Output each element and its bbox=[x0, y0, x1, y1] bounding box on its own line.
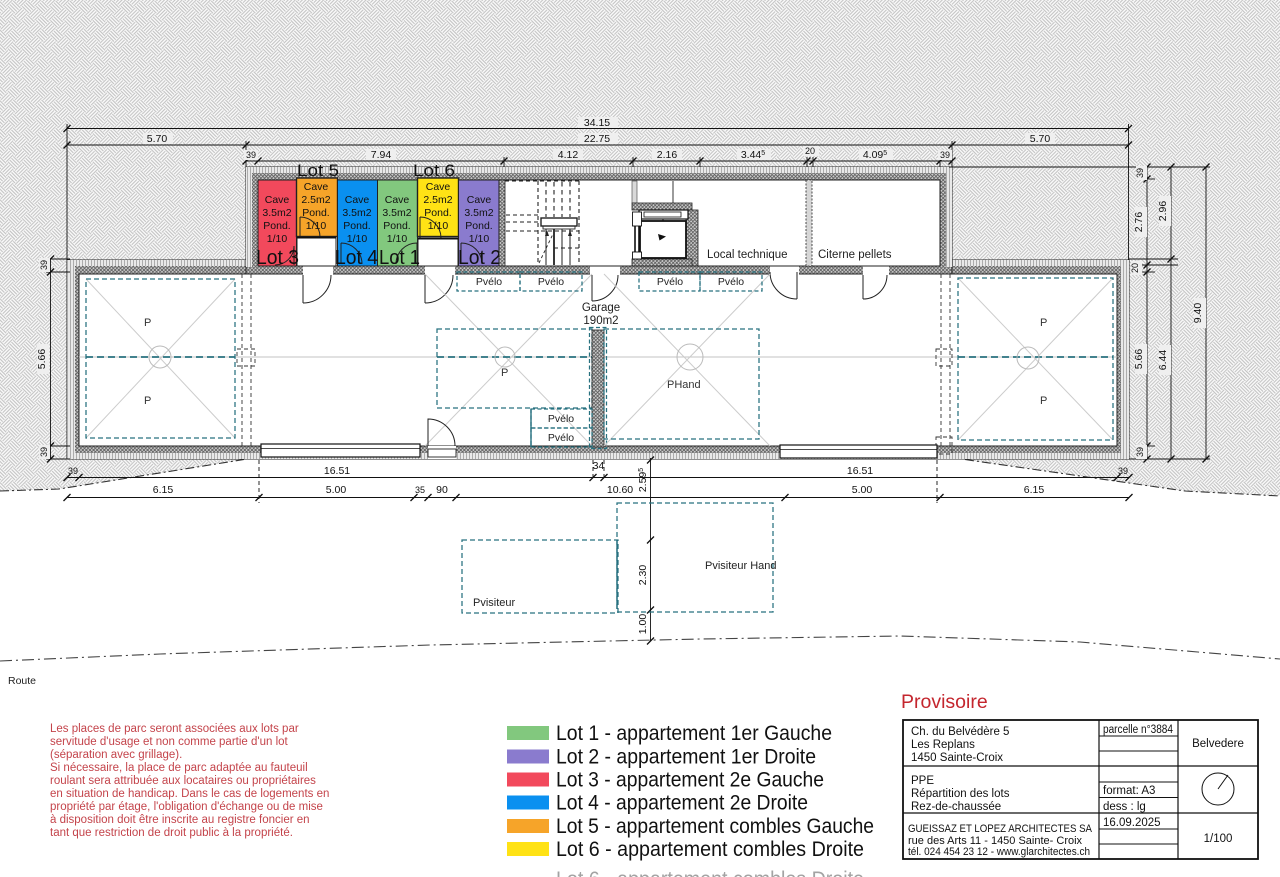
svg-text:Pvélo: Pvélo bbox=[548, 432, 574, 444]
svg-text:2.96: 2.96 bbox=[1157, 201, 1169, 222]
svg-text:Lot 3: Lot 3 bbox=[256, 247, 299, 269]
svg-text:5.70: 5.70 bbox=[1030, 133, 1051, 145]
svg-text:Pvisiteur Hand: Pvisiteur Hand bbox=[705, 560, 777, 572]
svg-text:Cave: Cave bbox=[345, 194, 370, 206]
svg-text:à disposition doit être inscri: à disposition doit être inscrite au regi… bbox=[50, 814, 310, 826]
svg-text:1/10: 1/10 bbox=[347, 233, 368, 245]
svg-text:Lot 2 - appartement 1er Droite: Lot 2 - appartement 1er Droite bbox=[556, 746, 816, 769]
svg-text:servitude d'usage et non comme: servitude d'usage et non comme partie d'… bbox=[50, 736, 289, 748]
svg-text:1/10: 1/10 bbox=[267, 233, 288, 245]
svg-text:39: 39 bbox=[39, 260, 49, 270]
svg-text:Rez-de-chaussée: Rez-de-chaussée bbox=[911, 801, 1001, 813]
svg-text:16.09.2025: 16.09.2025 bbox=[1103, 817, 1161, 829]
svg-text:Cave: Cave bbox=[385, 194, 410, 206]
svg-text:39: 39 bbox=[246, 150, 256, 160]
svg-text:Lot 5: Lot 5 bbox=[297, 161, 339, 180]
svg-text:PPE: PPE bbox=[911, 775, 934, 787]
svg-text:Les places de parc seront asso: Les places de parc seront associées aux … bbox=[50, 723, 299, 735]
svg-text:5.00: 5.00 bbox=[852, 484, 873, 496]
svg-text:2.16: 2.16 bbox=[657, 149, 678, 161]
svg-text:Pvélo: Pvélo bbox=[657, 276, 683, 288]
svg-text:2.76: 2.76 bbox=[1133, 212, 1145, 233]
svg-text:1/10: 1/10 bbox=[306, 220, 327, 232]
svg-text:5.70: 5.70 bbox=[147, 133, 168, 145]
svg-text:Lot 4: Lot 4 bbox=[335, 247, 378, 269]
svg-text:6.15: 6.15 bbox=[153, 484, 174, 496]
svg-text:Provisoire: Provisoire bbox=[901, 691, 988, 713]
svg-text:Lot 5 - appartement combles Ga: Lot 5 - appartement combles Gauche bbox=[556, 815, 874, 838]
svg-text:Citerne pellets: Citerne pellets bbox=[818, 249, 892, 261]
svg-text:Cave: Cave bbox=[304, 181, 329, 193]
svg-text:Lot 4 - appartement 2e Droite: Lot 4 - appartement 2e Droite bbox=[556, 792, 808, 815]
svg-text:Pond.: Pond. bbox=[424, 207, 451, 219]
svg-text:20: 20 bbox=[805, 146, 815, 156]
svg-text:34: 34 bbox=[593, 460, 605, 472]
svg-text:Pond.: Pond. bbox=[302, 207, 329, 219]
svg-text:39: 39 bbox=[940, 150, 950, 160]
svg-text:Lot 2: Lot 2 bbox=[458, 247, 501, 269]
svg-text:10.60: 10.60 bbox=[607, 484, 633, 496]
svg-text:1/10: 1/10 bbox=[469, 233, 490, 245]
svg-text:(séparation avec grillage).: (séparation avec grillage). bbox=[50, 749, 182, 761]
svg-text:Pvélo: Pvélo bbox=[548, 413, 574, 425]
svg-text:22.75: 22.75 bbox=[584, 133, 610, 145]
svg-text:Pond.: Pond. bbox=[343, 220, 370, 232]
svg-text:Lot 6 - appartement combles Dr: Lot 6 - appartement combles Droite bbox=[556, 868, 864, 877]
svg-text:20: 20 bbox=[1130, 263, 1140, 273]
svg-text:Pond.: Pond. bbox=[383, 220, 410, 232]
svg-text:dess : lg: dess : lg bbox=[1103, 801, 1146, 813]
svg-text:Pvisiteur: Pvisiteur bbox=[473, 597, 516, 609]
svg-text:5.00: 5.00 bbox=[326, 484, 347, 496]
svg-text:39: 39 bbox=[1135, 168, 1145, 178]
svg-text:16.51: 16.51 bbox=[324, 465, 350, 477]
svg-text:Répartition des lots: Répartition des lots bbox=[911, 788, 1010, 800]
svg-text:3.5m2: 3.5m2 bbox=[464, 207, 493, 219]
svg-text:3.5m2: 3.5m2 bbox=[382, 207, 411, 219]
svg-text:6.15: 6.15 bbox=[1024, 484, 1045, 496]
svg-text:PHand: PHand bbox=[667, 379, 701, 391]
svg-text:9.40: 9.40 bbox=[1192, 303, 1204, 324]
svg-text:39: 39 bbox=[1135, 447, 1145, 457]
svg-text:Cave: Cave bbox=[467, 194, 492, 206]
svg-text:Pond.: Pond. bbox=[465, 220, 492, 232]
svg-text:1/10: 1/10 bbox=[387, 233, 408, 245]
svg-text:Route: Route bbox=[8, 675, 36, 687]
svg-text:16.51: 16.51 bbox=[847, 465, 873, 477]
svg-text:3.5m2: 3.5m2 bbox=[342, 207, 371, 219]
svg-text:Si nécessaire, la place de par: Si nécessaire, la place de parc adaptée … bbox=[50, 762, 308, 774]
svg-text:format: A3: format: A3 bbox=[1103, 785, 1155, 797]
svg-text:Lot 1 - appartement 1er Gauche: Lot 1 - appartement 1er Gauche bbox=[556, 722, 832, 745]
svg-text:Ch. du Belvédère 5: Ch. du Belvédère 5 bbox=[911, 726, 1009, 738]
svg-text:propriété par étage, l'obligat: propriété par étage, l'obligation d'écha… bbox=[50, 801, 323, 813]
svg-text:2.5m2: 2.5m2 bbox=[423, 194, 452, 206]
svg-text:Belvedere: Belvedere bbox=[1192, 738, 1244, 750]
svg-text:P: P bbox=[144, 395, 151, 407]
svg-text:Lot 6 - appartement combles Dr: Lot 6 - appartement combles Droite bbox=[556, 838, 864, 861]
svg-text:2.30: 2.30 bbox=[637, 565, 649, 586]
svg-text:5.66: 5.66 bbox=[1133, 349, 1145, 370]
svg-text:2.5m2: 2.5m2 bbox=[301, 194, 330, 206]
svg-text:35: 35 bbox=[415, 485, 425, 495]
svg-text:39: 39 bbox=[1118, 466, 1128, 476]
svg-text:5.66: 5.66 bbox=[36, 349, 48, 370]
svg-text:P: P bbox=[144, 317, 151, 329]
svg-text:GUEISSAZ ET LOPEZ ARCHITECTES: GUEISSAZ ET LOPEZ ARCHITECTES SA bbox=[908, 823, 1093, 835]
svg-text:1.00: 1.00 bbox=[637, 614, 649, 635]
svg-text:Cave: Cave bbox=[426, 181, 451, 193]
svg-text:Pvélo: Pvélo bbox=[718, 276, 744, 288]
svg-text:34.15: 34.15 bbox=[584, 117, 610, 129]
svg-text:en situation de handicap. Dans: en situation de handicap. Dans le cas de… bbox=[50, 788, 329, 800]
svg-text:39: 39 bbox=[68, 466, 78, 476]
svg-text:P: P bbox=[501, 367, 508, 379]
svg-text:Les Replans: Les Replans bbox=[911, 739, 975, 751]
svg-text:Garage: Garage bbox=[582, 302, 620, 314]
svg-text:Lot 3 - appartement 2e Gauche: Lot 3 - appartement 2e Gauche bbox=[556, 769, 824, 792]
svg-text:Pond.: Pond. bbox=[263, 220, 290, 232]
svg-text:Cave: Cave bbox=[265, 194, 290, 206]
svg-text:tant que restriction de droit: tant que restriction de droit public à l… bbox=[50, 827, 293, 839]
svg-text:7.94: 7.94 bbox=[371, 149, 392, 161]
svg-text:Lot 6: Lot 6 bbox=[413, 161, 455, 180]
svg-text:Pvélo: Pvélo bbox=[476, 276, 502, 288]
svg-text:P: P bbox=[1040, 395, 1047, 407]
svg-text:Local technique: Local technique bbox=[707, 249, 788, 261]
svg-text:39: 39 bbox=[39, 447, 49, 457]
svg-text:3.5m2: 3.5m2 bbox=[262, 207, 291, 219]
svg-text:parcelle n°3884: parcelle n°3884 bbox=[1103, 724, 1174, 736]
svg-text:90: 90 bbox=[436, 484, 448, 496]
svg-text:1/100: 1/100 bbox=[1204, 833, 1233, 845]
svg-text:Pvélo: Pvélo bbox=[538, 276, 564, 288]
svg-text:190m2: 190m2 bbox=[583, 315, 618, 327]
svg-text:6.44: 6.44 bbox=[1157, 350, 1169, 371]
svg-text:P: P bbox=[1040, 317, 1047, 329]
svg-text:Lot 1: Lot 1 bbox=[379, 247, 420, 269]
svg-text:1450 Sainte-Croix: 1450 Sainte-Croix bbox=[911, 752, 1003, 764]
svg-text:4.12: 4.12 bbox=[558, 149, 579, 161]
svg-text:roulant sera attribuée aux loc: roulant sera attribuée aux locataires ou… bbox=[50, 775, 316, 787]
svg-text:tél. 024 454 23 12 - www.glarc: tél. 024 454 23 12 - www.glarchitectes.c… bbox=[908, 846, 1090, 858]
svg-text:1/10: 1/10 bbox=[428, 220, 449, 232]
